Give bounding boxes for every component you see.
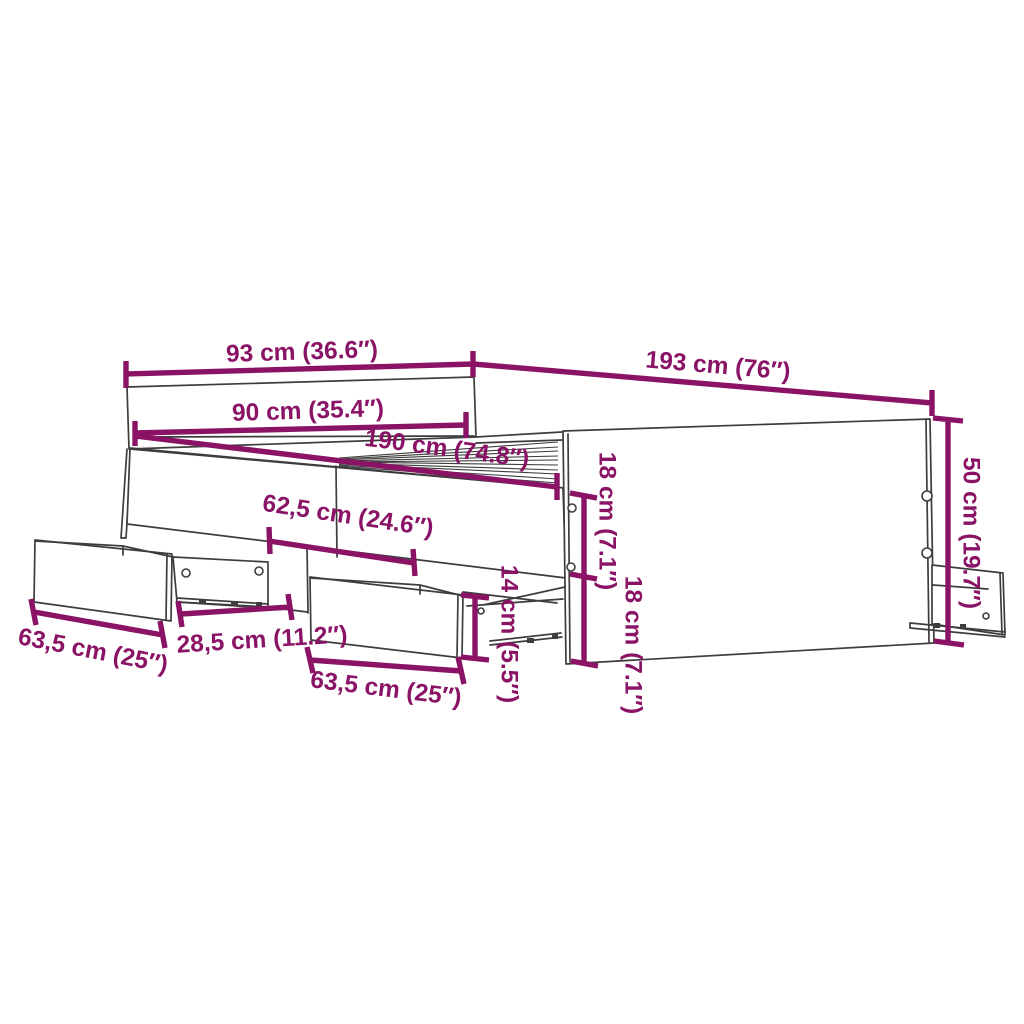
dowel-hole (922, 548, 932, 558)
drawer-hole (983, 613, 989, 619)
slide-stop (960, 624, 966, 629)
dimension-diagram: 93 cm (36.6″) 193 cm (76″) 90 cm (35.4″)… (0, 0, 1024, 1024)
dim-rail-lower-height-label: 18 cm (7.1″) (620, 576, 647, 714)
dowel-hole (567, 563, 575, 571)
dowel-hole (922, 491, 932, 501)
slide-stop (231, 601, 238, 606)
drawer-hole (478, 608, 484, 614)
dowel-hole (568, 504, 576, 512)
drawer-hole (255, 567, 263, 575)
drawer-hole (182, 569, 190, 577)
dim-drawer-height-label: 14 cm (5.5″) (496, 565, 523, 703)
slide-stop (552, 634, 558, 639)
slide-stop (199, 599, 206, 604)
dim-drawer2-width-label: 63,5 cm (25″) (309, 666, 463, 711)
dim-side-height-label: 50 cm (19.7″) (958, 457, 985, 609)
bed-frame-diagram-svg: 93 cm (36.6″) 193 cm (76″) 90 cm (35.4″)… (0, 0, 1024, 1024)
dim-rail-upper-height-label: 18 cm (7.1″) (594, 452, 621, 590)
dim-drawer-gap-label: 28,5 cm (11.2″) (176, 621, 348, 658)
slide-stop (527, 638, 534, 643)
dim-inner-width-label: 90 cm (35.4″) (232, 395, 385, 427)
dim-headboard-width-label: 93 cm (36.6″) (226, 336, 379, 368)
drawer-1 (34, 540, 173, 621)
slide-stop (934, 623, 940, 628)
